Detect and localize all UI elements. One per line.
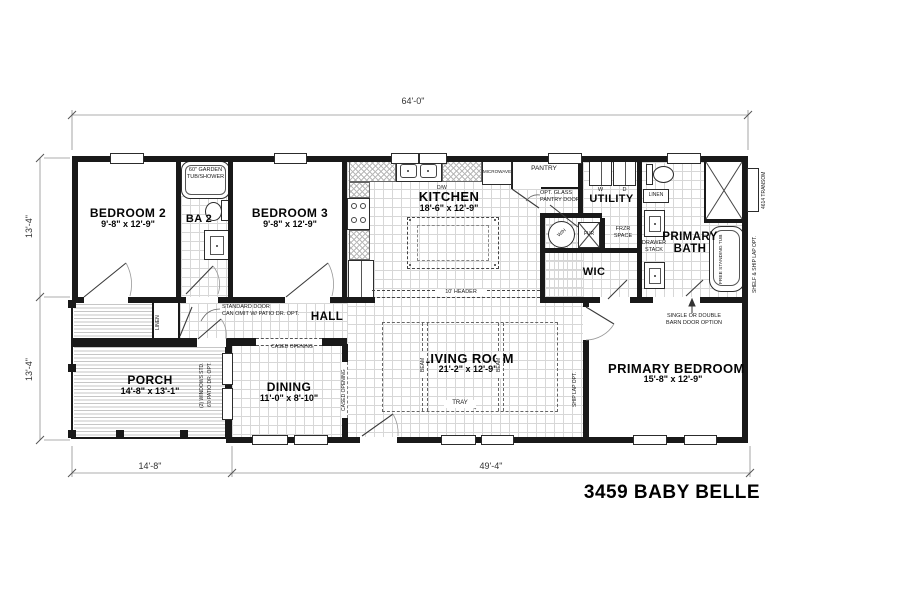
room-label-utility: UTILITY bbox=[584, 193, 639, 205]
dim-left-upper: 13'-4" bbox=[24, 198, 34, 256]
dryer-label: D bbox=[613, 187, 636, 194]
microwave-label: MICROWAVE bbox=[482, 169, 512, 175]
dishwasher-label: D/W bbox=[437, 185, 447, 191]
transom-label: 4614 TRANSOM bbox=[761, 166, 767, 214]
room-label-dining: DINING bbox=[241, 380, 337, 394]
beam-label: BEAM bbox=[496, 352, 502, 378]
windows-std-note: (2) WINDOWS STD. bbox=[199, 356, 205, 414]
garden-tub-label: 60" GARDEN bbox=[183, 167, 228, 174]
washer-label: W bbox=[589, 187, 612, 194]
barn-door-note: BARN DOOR OPTION bbox=[652, 320, 736, 327]
room-size-porch: 14'-8" x 13'-1" bbox=[102, 386, 198, 396]
plan-title: 3459 BABY BELLE bbox=[560, 482, 760, 504]
room-label-porch: PORCH bbox=[102, 373, 198, 387]
opt-glass-note: PANTRY DOOR bbox=[540, 197, 580, 204]
dim-left-lower: 13'-4" bbox=[24, 341, 34, 399]
room-label-wic: WIC bbox=[570, 266, 618, 278]
garden-tub-label: TUB/SHOWER bbox=[183, 174, 228, 181]
dim-main-width: 49'-4" bbox=[446, 461, 536, 471]
dim-porch-width: 14'-8" bbox=[105, 461, 195, 471]
room-size-primary-bedroom: 15'-8" x 12'-9" bbox=[608, 374, 738, 384]
drawer-stack-label: STACK bbox=[636, 247, 672, 254]
tray-label: TRAY bbox=[444, 400, 476, 408]
floor-plan: BEDROOM 2 9'-8" x 12'-9" BA 2 BEDROOM 3 … bbox=[0, 0, 900, 612]
standard-door-note: STANDARD DOOR bbox=[222, 304, 270, 311]
freestanding-tub-label: FREE STANDING TUB bbox=[719, 232, 725, 286]
header-label: 10' HEADER bbox=[436, 289, 486, 296]
furnace-label: FUR bbox=[578, 231, 600, 237]
linen-hall-label: LINEN bbox=[155, 306, 161, 340]
drawer-stack-label: DRAWER bbox=[636, 240, 672, 247]
shiplap-note: SHIP LAP OPT. bbox=[572, 365, 578, 415]
room-size-kitchen: 18'-6" x 12'-9" bbox=[399, 203, 499, 213]
barn-door-note: SINGLE OR DOUBLE bbox=[652, 313, 736, 320]
pantry-label: PANTRY bbox=[513, 165, 575, 173]
standard-door-note: CAN OMIT W/ PATIO DR. OPT. bbox=[222, 311, 299, 318]
room-size-dining: 11'-0" x 8'-10" bbox=[241, 393, 337, 403]
opt-glass-note: OPT. GLASS bbox=[540, 190, 572, 197]
cased-opening-label: CASED OPENING bbox=[262, 344, 322, 350]
linen-label: LINEN bbox=[643, 192, 669, 198]
cased-opening-label: CASED OPENING bbox=[341, 362, 347, 418]
freezer-label: SPACE bbox=[604, 233, 642, 240]
freezer-label: FRZR bbox=[604, 226, 642, 233]
plan-linework bbox=[0, 0, 900, 612]
room-label-bedroom2: BEDROOM 2 bbox=[80, 206, 176, 220]
beam-label: BEAM bbox=[420, 352, 426, 378]
room-size-bedroom3: 9'-8" x 12'-9" bbox=[240, 219, 340, 229]
room-label-kitchen: KITCHEN bbox=[399, 189, 499, 204]
room-label-bath2: BA 2 bbox=[181, 213, 217, 225]
room-label-bedroom3: BEDROOM 3 bbox=[240, 206, 340, 220]
patio-door-note: 6'0 PATIO DR. OPT. bbox=[207, 356, 213, 414]
room-size-bedroom2: 9'-8" x 12'-9" bbox=[80, 219, 176, 229]
shelf-shiplap-note: SHELF & SHIP LAP OPT. bbox=[752, 228, 758, 300]
room-label-hall: HALL bbox=[305, 311, 349, 323]
dim-overall-width: 64'-0" bbox=[358, 96, 468, 106]
